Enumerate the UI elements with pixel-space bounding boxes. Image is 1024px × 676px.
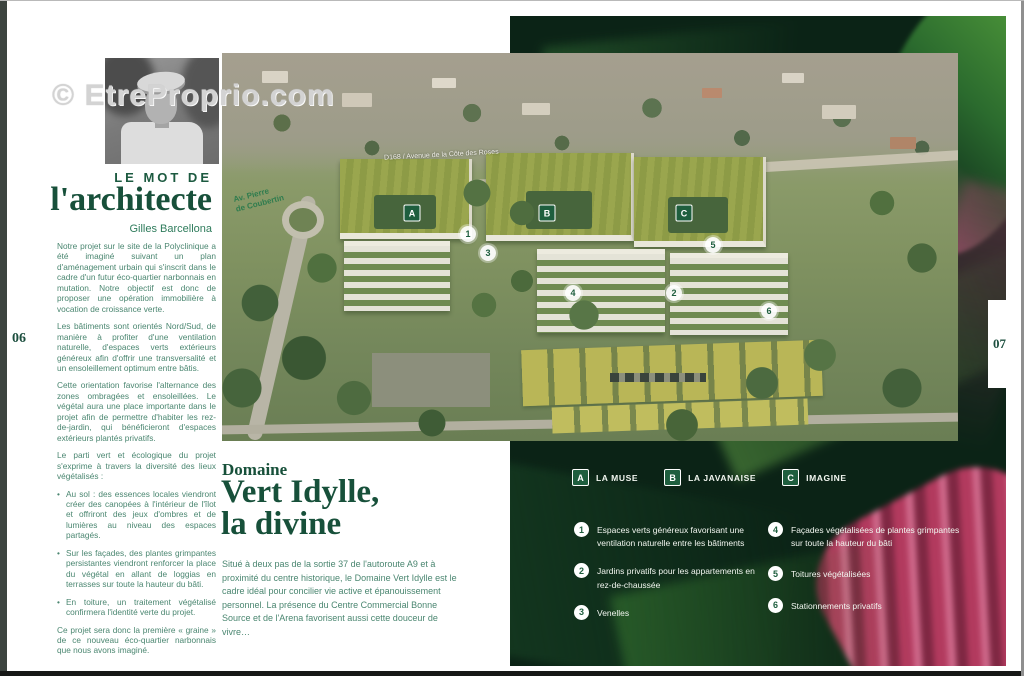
page-margin-right [1006,1,1022,676]
bullet-item: Sur les façades, des plantes grimpantes … [57,548,216,590]
feature-item-4: 4 Façades végétalisées de plantes grimpa… [768,522,968,550]
map-marker-building-b: B [539,205,556,222]
feature-number-badge: 3 [574,605,589,620]
map-marker-6: 6 [761,303,777,319]
map-marker-4: 4 [565,285,581,301]
paragraph: Les bâtiments sont orientés Nord/Sud, de… [57,321,216,373]
project-title: Vert Idylle, la divine [221,477,379,540]
paragraph: Cette orientation favorise l'alternance … [57,380,216,443]
bullet-item: En toiture, un traitement végétalisé con… [57,597,216,618]
map-marker-1: 1 [460,226,476,242]
legend-building-c: C IMAGINE [782,469,847,486]
project-description: Situé à deux pas de la sortie 37 de l'au… [222,558,464,639]
page-number-left: 06 [12,331,26,347]
feature-number-badge: 4 [768,522,783,537]
feature-number-badge: 2 [574,563,589,578]
map-marker-building-c: C [676,205,693,222]
page-number-right: 07 [988,336,1006,352]
brochure-spread: D168 / Avenue de la Côte des Roses Av. P… [0,0,1024,676]
feature-item-2: 2 Jardins privatifs pour les appartement… [574,563,762,591]
scan-border-bottom [0,671,1024,676]
feature-legend-col2: 4 Façades végétalisées de plantes grimpa… [768,522,968,629]
architect-text-column: Notre projet sur le site de la Polyclini… [57,241,216,663]
feature-item-5: 5 Toitures végétalisées [768,566,968,581]
legend-letter-box: A [572,469,589,486]
page-number-tab-right: 07 [988,300,1008,388]
architect-name: Gilles Barcellona [40,223,212,235]
building-legend: A LA MUSE B LA JAVANAISE C IMAGINE [572,469,847,486]
feature-item-6: 6 Stationnements privatifs [768,598,968,613]
feature-item-1: 1 Espaces verts généreux favorisant une … [574,522,762,550]
legend-building-a: A LA MUSE [572,469,638,486]
map-marker-3: 3 [480,245,496,261]
legend-building-b: B LA JAVANAISE [664,469,756,486]
section-title: l'architecte [20,181,212,219]
feature-item-3: 3 Venelles [574,605,762,620]
legend-letter-box: C [782,469,799,486]
scan-border-left [0,1,7,676]
map-marker-5: 5 [705,237,721,253]
feature-number-badge: 5 [768,566,783,581]
watermark: © EtreProprio.com [52,79,335,113]
bullet-item: Au sol : des essences locales viendront … [57,489,216,541]
map-marker-2: 2 [666,285,682,301]
portrait-shirt [121,122,203,164]
map-marker-building-a: A [404,205,421,222]
closing-paragraph: Ce projet sera donc la première « graine… [57,625,216,656]
legend-letter-box: B [664,469,681,486]
feature-number-badge: 6 [768,598,783,613]
paragraph: Notre projet sur le site de la Polyclini… [57,241,216,314]
paragraph: Le parti vert et écologique du projet s'… [57,450,216,481]
feature-number-badge: 1 [574,522,589,537]
feature-legend-col1: 1 Espaces verts généreux favorisant une … [574,522,762,633]
